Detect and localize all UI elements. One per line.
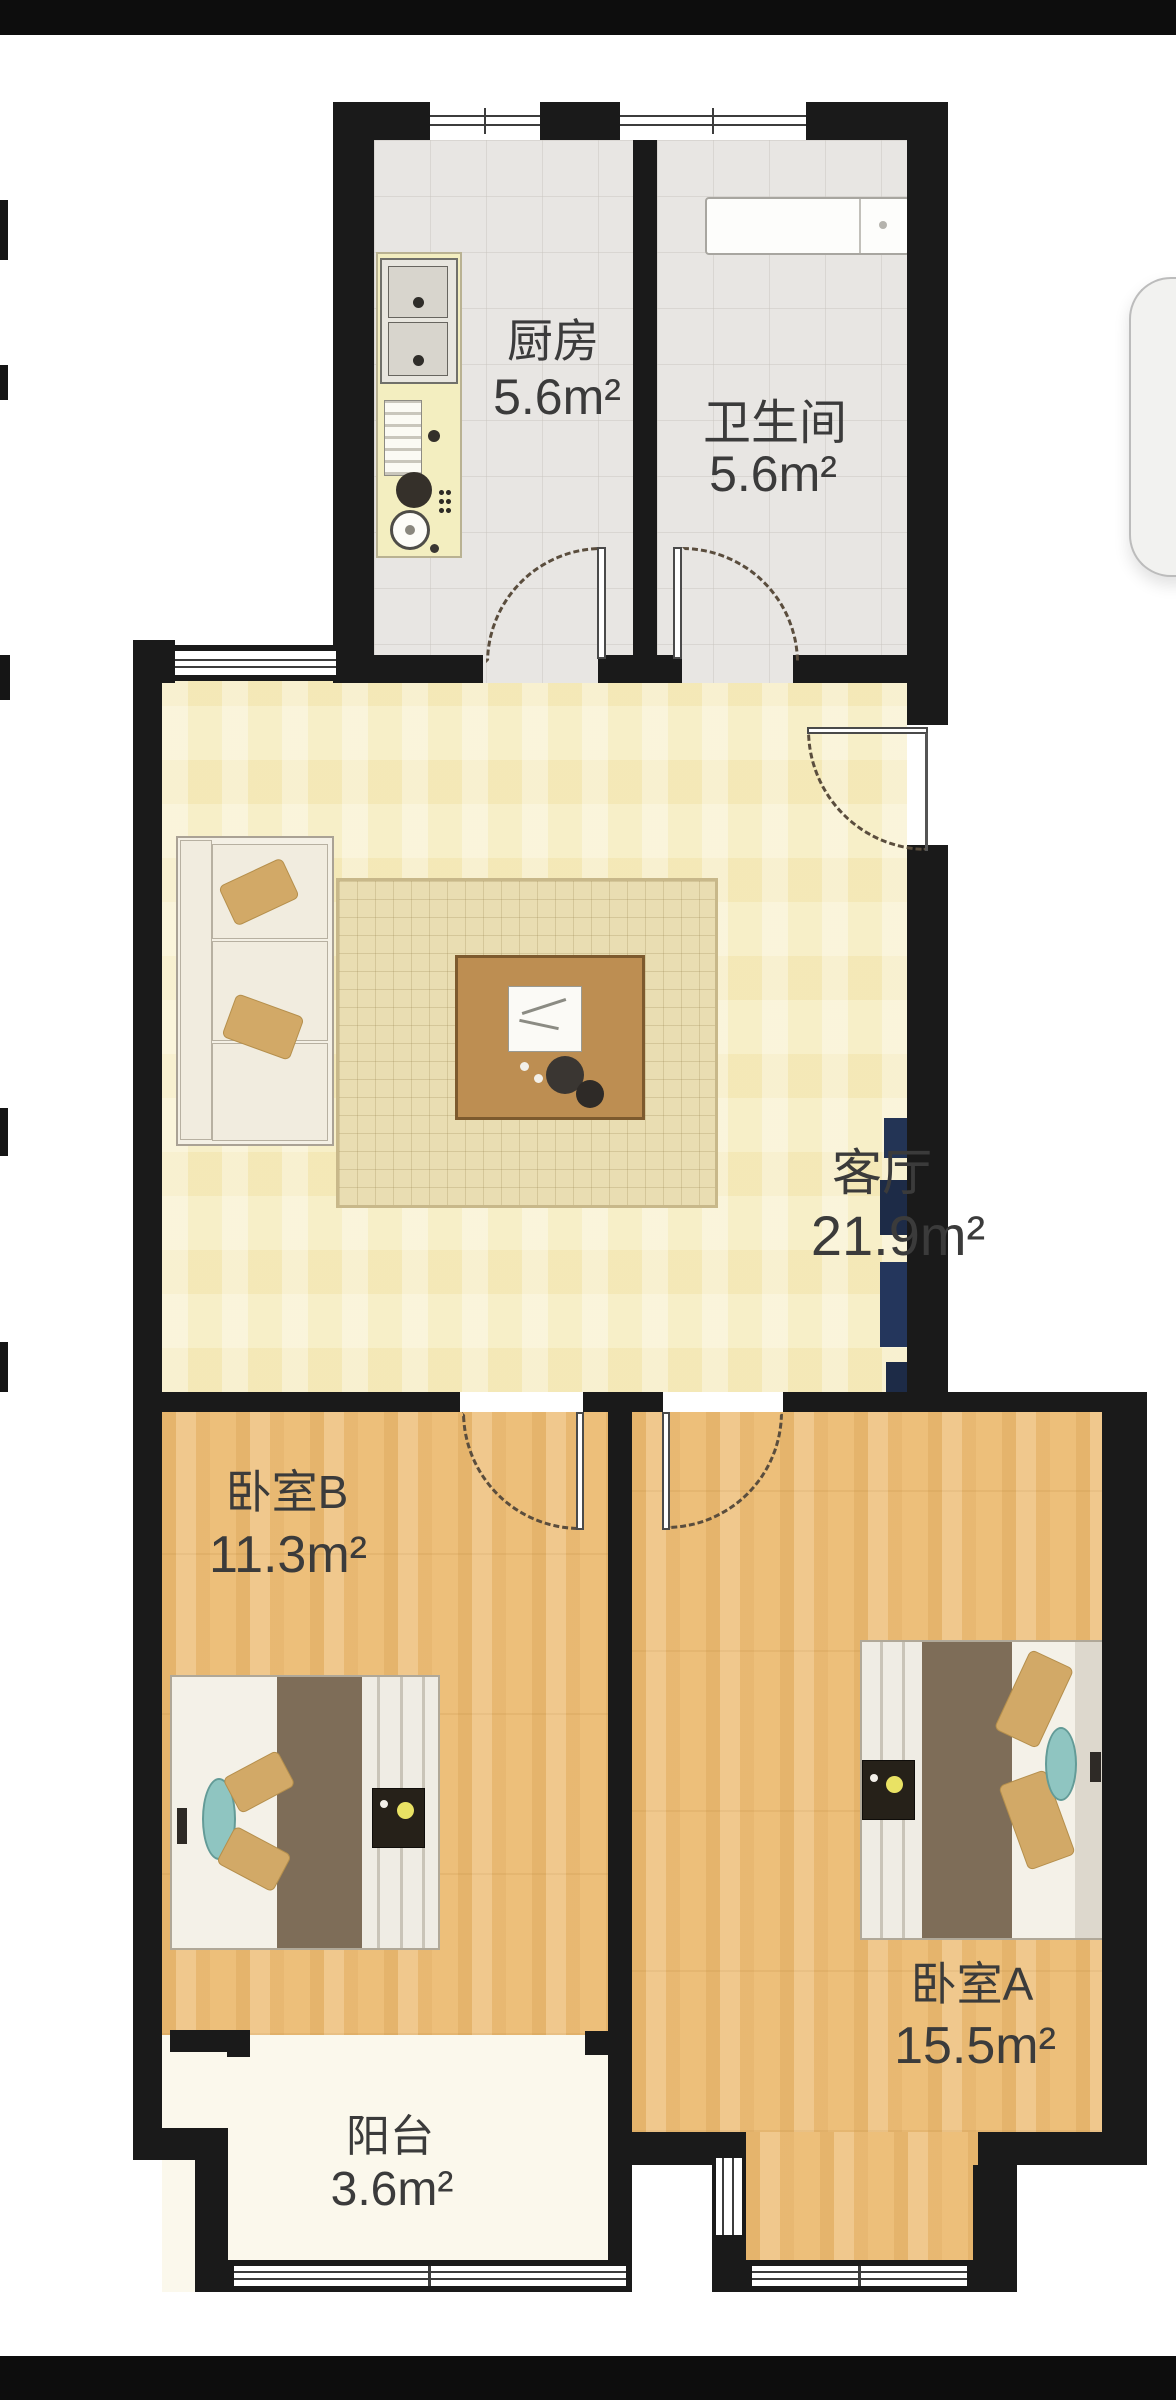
side-nook-window [716, 2158, 742, 2235]
wall [978, 2132, 1147, 2165]
room-area-bedroomA: 15.5m² [894, 2016, 1056, 2076]
wall [133, 640, 162, 2160]
room-area-kitchen: 5.6m² [493, 368, 621, 426]
bedroomA-door-leaf [662, 1412, 670, 1530]
paper-scribble [522, 998, 567, 1015]
wall [632, 2132, 712, 2165]
room-area-bathroom: 5.6m² [709, 445, 837, 503]
burner-icon [388, 322, 448, 376]
room-label-balcony: 阳台 [346, 2100, 434, 2164]
bedA-blanket [922, 1642, 1012, 1938]
window-mullion [858, 2266, 861, 2286]
washer-knob [879, 221, 887, 229]
bedB-nightstand [372, 1788, 425, 1848]
washer-icon [705, 197, 910, 255]
wall [1102, 1412, 1147, 2165]
jar-icon [428, 430, 440, 442]
paper-scribble [519, 1019, 559, 1030]
window-line [175, 659, 336, 661]
bedroomB-door-leaf [576, 1412, 584, 1530]
wall [540, 102, 620, 140]
wall [583, 1392, 663, 1412]
room-label-bedroomA: 卧室A [911, 1948, 1034, 2014]
bedA-lamp [886, 1776, 903, 1793]
wall [608, 1412, 632, 2292]
top-letterbox-bar [0, 0, 1176, 35]
coffee-table [455, 955, 645, 1120]
pot-icon [396, 472, 432, 508]
bathroom-window [620, 108, 806, 134]
room-area-balcony: 3.6m² [331, 2162, 454, 2217]
bedA-bench-legs [1090, 1752, 1101, 1782]
wall [793, 655, 907, 683]
sink-icon [390, 510, 430, 550]
side-panel-card[interactable] [1129, 277, 1176, 577]
window-line [722, 2158, 724, 2235]
table-dot [534, 1074, 543, 1083]
room-label-bedroomB: 卧室B [226, 1456, 349, 1522]
burner-dot [413, 297, 424, 308]
clipped-edge-artifact [0, 200, 8, 260]
sofa-backrest [180, 840, 212, 1140]
clipped-edge-artifact [0, 1108, 8, 1156]
burner-icon [388, 266, 448, 318]
wall [907, 102, 948, 725]
bedA-teal-cushion [1045, 1727, 1077, 1801]
window-line [175, 666, 336, 668]
wall [374, 655, 483, 683]
window-mullion [428, 2266, 431, 2286]
entry-door-leaf [807, 727, 928, 734]
entry-door-frame-line [925, 733, 928, 851]
wall [133, 2128, 228, 2160]
sofa-cushion [212, 1043, 328, 1141]
window-line [732, 2158, 734, 2235]
table-paper [508, 986, 582, 1052]
bottom-letterbox-bar [0, 2356, 1176, 2400]
kitchen-door-leaf [597, 547, 606, 659]
spice-dots-icon [438, 488, 452, 514]
kitchen-window [430, 108, 540, 134]
stove-icon [380, 258, 458, 384]
wall [633, 140, 657, 660]
cup-icon [576, 1080, 604, 1108]
sofa [176, 836, 334, 1146]
wall [227, 2045, 250, 2057]
room-area-bedroomB: 11.3m² [209, 1525, 367, 1585]
bedroomA-window [752, 2266, 967, 2286]
burner-dot [413, 355, 424, 366]
clipped-edge-artifact [0, 365, 8, 400]
wall [333, 102, 374, 683]
wall [598, 655, 682, 683]
wall [973, 2165, 1017, 2292]
bedB-blanket [277, 1677, 362, 1948]
floorplan-screenshot: 厨房 5.6m² 卫生间 5.6m² 客厅 21.9m² 卧室B 11.3m² … [0, 0, 1176, 2400]
room-label-kitchen: 厨房 [507, 305, 599, 371]
balcony-window [234, 2266, 626, 2286]
cutting-board-icon [384, 400, 422, 476]
bedA-headboard [1075, 1642, 1103, 1938]
window-mullion [712, 108, 714, 134]
wall [907, 845, 948, 1405]
drain-dot [405, 525, 415, 535]
wall [783, 1392, 1147, 1412]
bedB-bench-legs [177, 1808, 187, 1844]
wall [162, 1392, 460, 1412]
bedB-lamp [397, 1802, 414, 1819]
bedroomA-floor-nook [746, 2132, 978, 2262]
wall [195, 2160, 228, 2292]
bedA-lamp-dot [870, 1774, 878, 1782]
faucet-dot [430, 544, 439, 553]
table-dot [520, 1062, 529, 1071]
bathroom-door-leaf [673, 547, 682, 659]
wall [585, 2031, 632, 2055]
clipped-edge-artifact [0, 1342, 8, 1392]
bedB-lamp-dot [380, 1800, 388, 1808]
clipped-edge-artifact [0, 655, 10, 700]
washer-seam [859, 199, 861, 253]
room-label-living: 客厅 [832, 1133, 932, 1205]
window-mullion [484, 108, 486, 134]
living-room-window [175, 645, 336, 681]
room-area-living: 21.9m² [811, 1203, 985, 1268]
wall-cabinet [880, 1262, 907, 1347]
room-label-bathroom: 卫生间 [703, 383, 847, 453]
